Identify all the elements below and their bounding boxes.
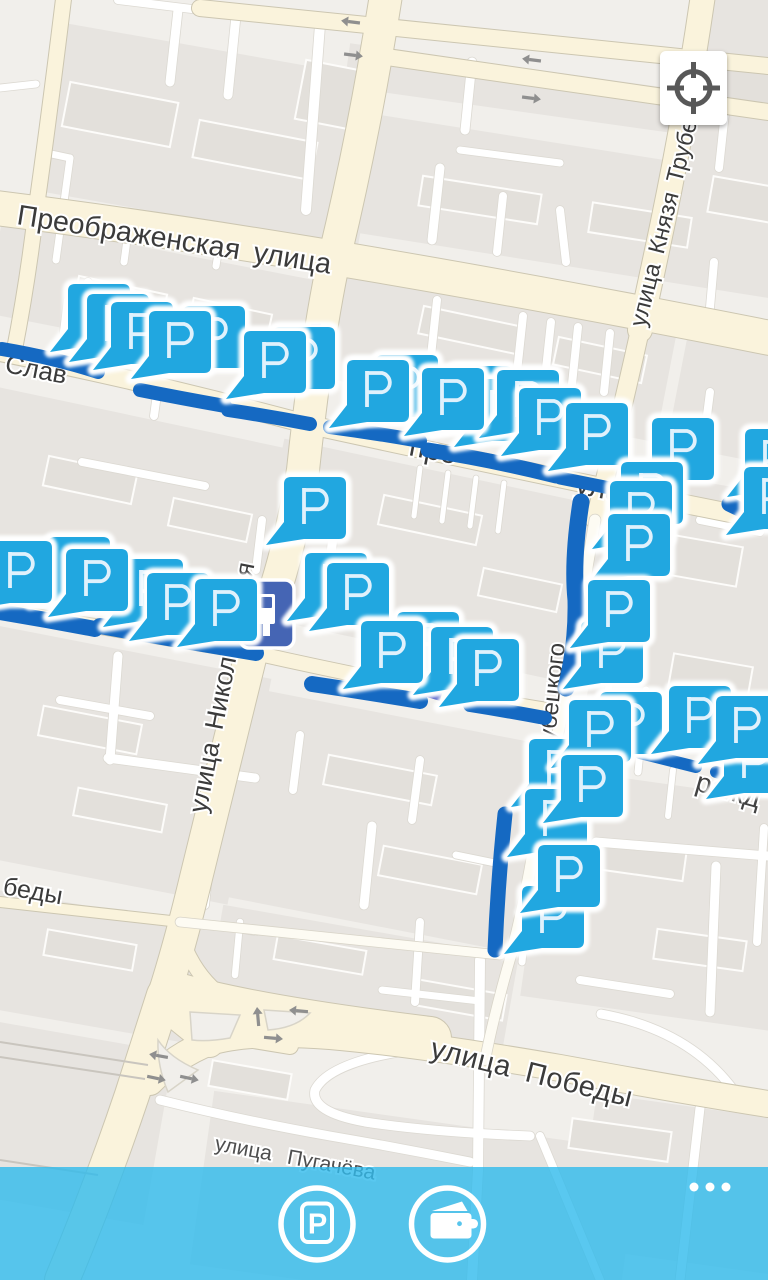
svg-text:P: P xyxy=(308,1209,327,1241)
